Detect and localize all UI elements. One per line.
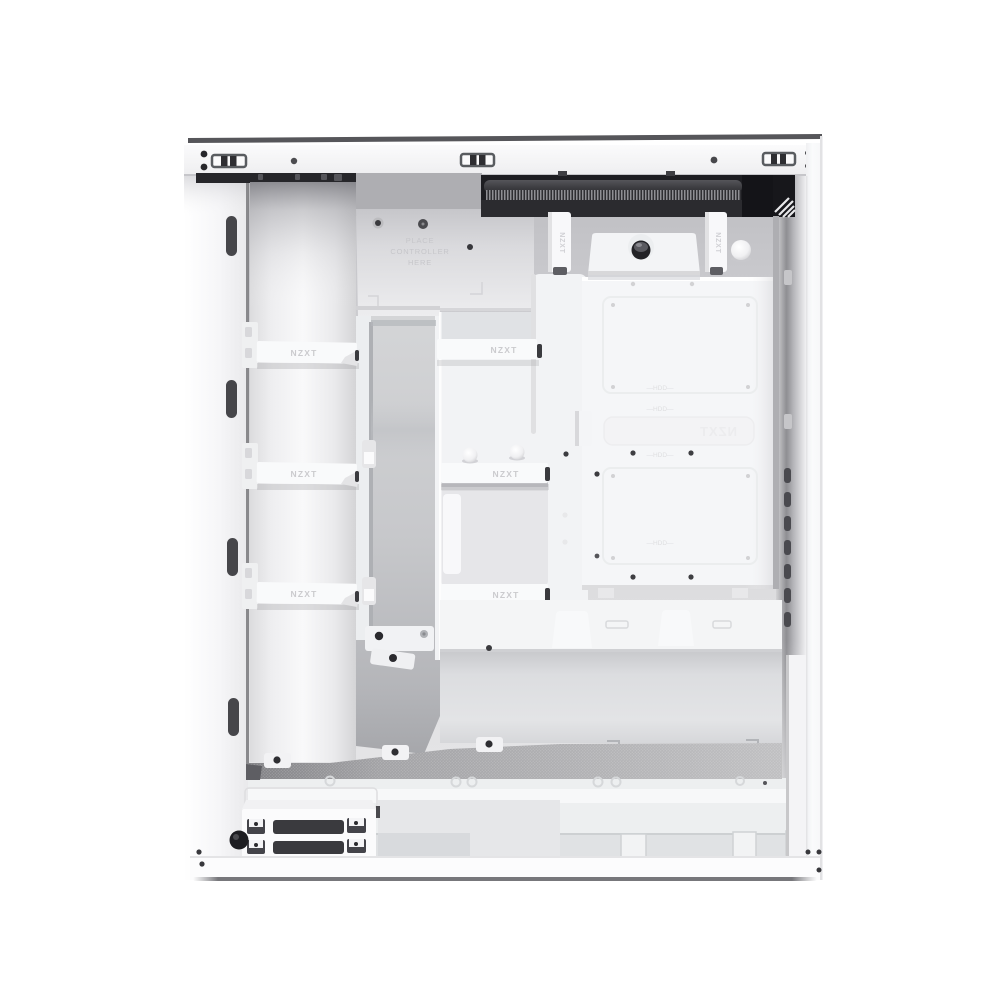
svg-text:NZXT: NZXT bbox=[491, 345, 518, 355]
svg-text:CONTROLLER: CONTROLLER bbox=[390, 247, 449, 256]
svg-text:—HDD—: —HDD— bbox=[646, 385, 674, 392]
svg-text:NZXT: NZXT bbox=[714, 232, 721, 253]
svg-text:NZXT: NZXT bbox=[493, 469, 520, 479]
svg-text:NZXT: NZXT bbox=[291, 348, 318, 358]
svg-text:—HDD—: —HDD— bbox=[646, 452, 674, 459]
svg-text:NZXT: NZXT bbox=[291, 589, 318, 599]
svg-text:NZXT: NZXT bbox=[493, 590, 520, 600]
svg-text:NZXT: NZXT bbox=[699, 424, 737, 439]
svg-text:HERE: HERE bbox=[408, 258, 432, 267]
svg-text:PLACE: PLACE bbox=[406, 236, 435, 245]
svg-text:—HDD—: —HDD— bbox=[646, 406, 674, 413]
svg-text:NZXT: NZXT bbox=[558, 232, 565, 253]
svg-text:—HDD—: —HDD— bbox=[646, 540, 674, 547]
svg-text:NZXT: NZXT bbox=[291, 469, 318, 479]
